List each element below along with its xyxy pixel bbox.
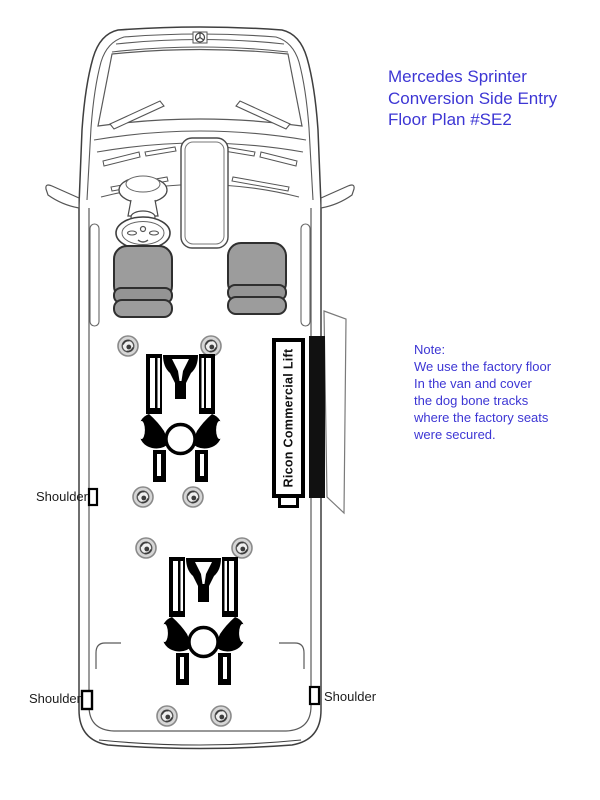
mercedes-star-icon: [193, 32, 207, 43]
passenger-seat: [228, 243, 286, 314]
shoulder-bracket-right: [310, 687, 319, 704]
note-line: In the van and cover: [414, 375, 594, 392]
lift-label: Ricon Commercial Lift: [272, 338, 305, 498]
sliding-door-panel: [324, 311, 346, 513]
shoulder-label-right: Shoulder: [324, 689, 404, 704]
shoulder-label-left-upper: Shoulder: [0, 489, 88, 504]
shoulder-bracket-left-lower: [82, 691, 92, 709]
windshield: [98, 50, 302, 130]
note-line: Note:: [414, 341, 594, 358]
note-text: Note: We use the factory floor In the va…: [414, 341, 594, 443]
floor-plan-canvas: Ricon Commercial Lift Mercedes Sprinter …: [0, 0, 600, 800]
title-line: Floor Plan #SE2: [388, 109, 593, 131]
shoulder-bracket-left-upper: [89, 489, 97, 505]
driver-seat: [114, 246, 172, 317]
lift-label-text: Ricon Commercial Lift: [282, 349, 296, 488]
side-door-opening: [309, 336, 325, 498]
mirror-left-icon: [46, 185, 79, 208]
note-line: We use the factory floor: [414, 358, 594, 375]
note-line: the dog bone tracks: [414, 392, 594, 409]
shoulder-label-left-lower: Shoulder: [0, 691, 81, 706]
mirror-right-icon: [321, 185, 354, 208]
note-line: were secured.: [414, 426, 594, 443]
pillar-trim-left: [90, 224, 99, 326]
note-line: where the factory seats: [414, 409, 594, 426]
pillar-trim-right: [301, 224, 310, 326]
title-line: Mercedes Sprinter: [388, 66, 593, 88]
center-console: [181, 138, 228, 248]
diagram-title: Mercedes Sprinter Conversion Side Entry …: [388, 66, 593, 131]
title-line: Conversion Side Entry: [388, 88, 593, 110]
